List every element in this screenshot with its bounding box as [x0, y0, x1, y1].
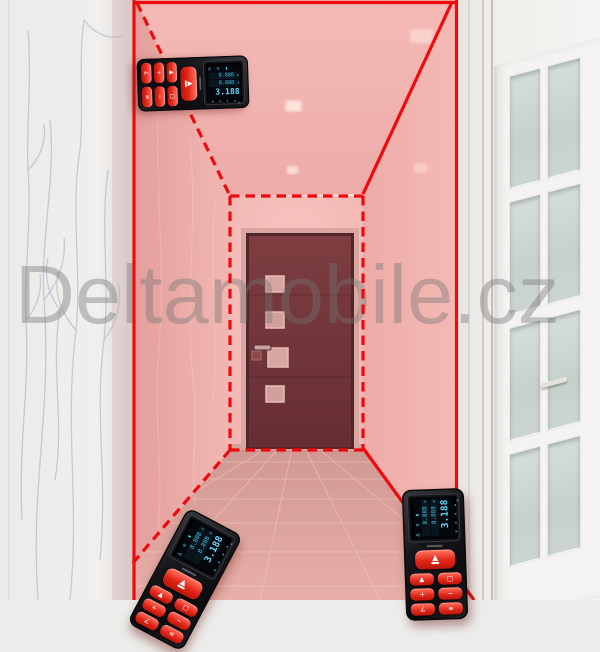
keypad-button: □: [438, 572, 462, 585]
brand-label: [427, 545, 443, 548]
device-display: ∆ ≡ ▮ 8.888 m 8.888 m 3.188 m ▪ ▪ ▪ ▪: [175, 520, 229, 574]
keypad-button: +: [154, 62, 165, 83]
laser-icon: [185, 80, 192, 87]
display-history-reading: 8.888 m: [209, 79, 240, 87]
display-history-reading: 8.888 m: [208, 72, 239, 80]
keypad-button: ▲: [166, 62, 177, 83]
display-history-reading: 8.888 m: [430, 500, 439, 536]
keypad-button: □: [167, 86, 178, 107]
device-keypad: ▲ □ + − ∠ ≡: [410, 572, 463, 616]
display-softkey-dots: ▪ ▪ ▪ ▪: [452, 499, 458, 535]
keypad-button: +: [410, 588, 434, 601]
laser-icon: [177, 578, 188, 589]
keypad-button: ∠: [411, 603, 435, 616]
keypad-button: ▲: [410, 573, 434, 586]
keypad-button: −: [154, 86, 165, 107]
brand-label: [199, 76, 201, 90]
device-screen: ∆ ≡ ▮ 8.888 m 8.888 m 3.188 m ▪ ▪ ▪ ▪: [407, 493, 461, 543]
keypad-button: ∠: [141, 63, 152, 84]
laser-measurement-lines: [0, 0, 600, 600]
device-display: ∆ ≡ ▮ 8.888 m 8.888 m 3.188 m ▪ ▪ ▪ ▪: [413, 497, 454, 538]
laser-icon: [431, 555, 439, 564]
device-keypad: ▲ □ + − ∠ ≡: [141, 62, 178, 107]
display-main-reading: 3.188 m: [439, 499, 452, 535]
laser-meter-top-left: ∆ ≡ ▮ 8.888 m 8.888 m 3.188 m ▪ ▪ ▪ ▪ ▲ …: [136, 55, 249, 112]
device-display: ∆ ≡ ▮ 8.888 m 8.888 m 3.188 m ▪ ▪ ▪ ▪: [206, 65, 241, 100]
keypad-button: ≡: [142, 87, 153, 108]
display-softkey-dots: ▪ ▪ ▪ ▪: [209, 98, 240, 103]
keypad-button: ≡: [439, 602, 463, 615]
display-main-reading: 3.188 m: [209, 87, 240, 98]
measure-button: [415, 549, 456, 569]
keypad-button: −: [438, 587, 462, 600]
measure-button: [180, 66, 197, 101]
device-screen: ∆ ≡ ▮ 8.888 m 8.888 m 3.188 m ▪ ▪ ▪ ▪: [203, 60, 245, 106]
display-status-icons: ∆ ≡ ▮: [414, 500, 421, 536]
laser-meter-bottom-right: ∆ ≡ ▮ 8.888 m 8.888 m 3.188 m ▪ ▪ ▪ ▪ ▲ …: [402, 488, 469, 621]
display-history-reading: 8.888 m: [421, 500, 430, 536]
